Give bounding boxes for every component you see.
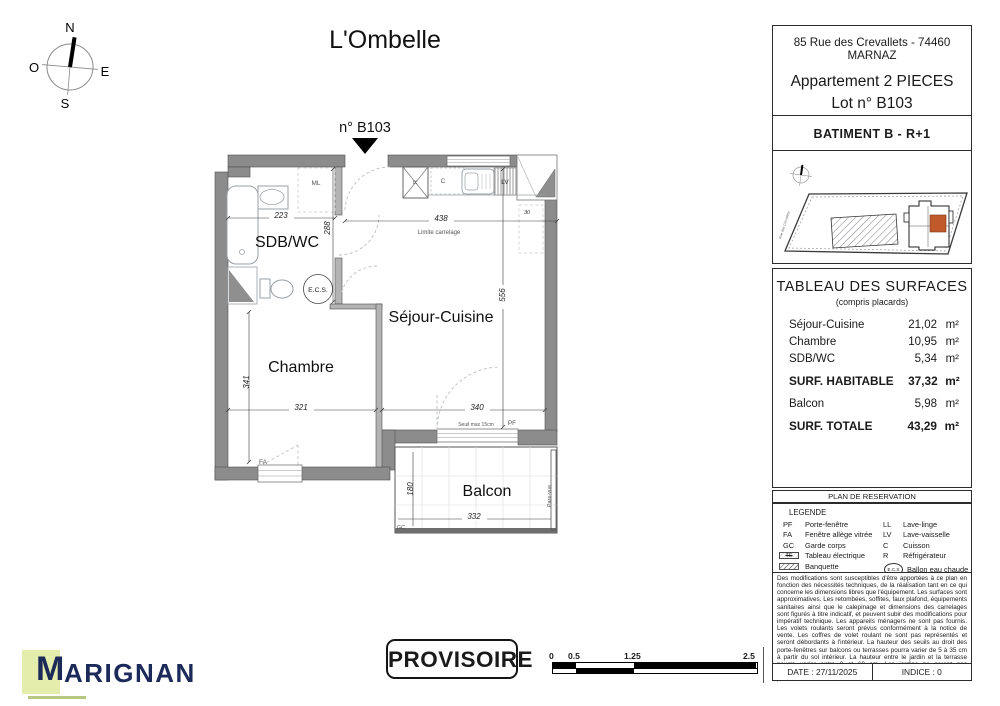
interior-partitions — [330, 167, 382, 467]
legend-label: Porte-fenêtre — [805, 520, 848, 529]
bedroom-door-swing — [340, 266, 377, 303]
surfaces-subtitle: (compris placards) — [773, 297, 971, 307]
surfaces-title: TABLEAU DES SURFACES — [773, 279, 971, 295]
logo-underline — [28, 696, 86, 699]
compass-e-label: E — [101, 64, 110, 79]
surface-unit: m² — [937, 353, 959, 365]
scale-tick-label: 1.25 — [624, 651, 641, 661]
logo-wordmark: ARIGNAN — [64, 658, 196, 689]
mini-compass-icon — [789, 163, 814, 188]
dim-sdb-width: 223 — [273, 211, 288, 220]
kitchen-window — [447, 156, 510, 166]
cooktop-label: C — [441, 178, 446, 185]
legend-title: LEGENDE — [789, 508, 971, 517]
door-swings — [339, 167, 500, 430]
surface-room: Chambre — [789, 336, 836, 348]
corner-window — [517, 155, 557, 200]
unit-location-highlight — [930, 215, 946, 232]
surface-room: Balcon — [789, 398, 824, 410]
reservation-title: PLAN DE RESERVATION — [828, 492, 916, 501]
refrigerator-icon: R — [403, 167, 428, 198]
legend-code: PF — [783, 520, 805, 529]
surface-unit: m² — [937, 419, 959, 433]
legend-item: LVLave-vaisselle — [881, 530, 971, 541]
apartment-type: Appartement 2 PIECES — [773, 73, 971, 91]
surface-unit: m² — [937, 336, 959, 348]
balcony-door-sill — [437, 429, 518, 442]
fa-label: FA — [259, 459, 268, 466]
legend-label: Réfrigérateur — [903, 551, 946, 560]
pf-label: PF — [508, 420, 516, 427]
dim-sejour-span: 340 — [470, 403, 484, 412]
surface-area: 43,29 — [893, 419, 937, 433]
compass-cross — [40, 35, 101, 98]
surface-row-habitable: SURF. HABITABLE 37,32m² — [773, 374, 971, 388]
scale-end-divider — [763, 647, 764, 683]
indice-value: INDICE : 0 — [873, 664, 972, 680]
scale-tick-label: 0.5 — [568, 651, 580, 661]
entry-arrow-icon — [352, 138, 378, 154]
room-label-sdb: SDB/WC — [255, 234, 319, 251]
surface-area: 21,02 — [893, 319, 937, 331]
sink-icon — [462, 169, 494, 194]
dim-balcon-height: 180 — [406, 482, 415, 496]
room-label-chambre: Chambre — [268, 359, 334, 376]
legend-label: Cuisson — [903, 541, 930, 550]
legend-label: Lave-vaisselle — [903, 530, 950, 539]
dim-sejour-width: 438 — [434, 214, 448, 223]
batiment-box: BATIMENT B - R+1 — [772, 115, 972, 151]
site-street-label: Rue des Crevallets — [778, 211, 791, 240]
disclaimer-box: Des modifications sont susceptibles d'êt… — [772, 572, 972, 664]
compass-o-label: O — [29, 60, 39, 75]
compass-rose-icon: N O E S — [20, 10, 130, 120]
surface-room: Séjour-Cuisine — [789, 319, 864, 331]
surface-row: SDB/WC 5,34m² — [773, 353, 971, 365]
refrigerator-label: R — [413, 180, 419, 184]
legend-label: Lave-linge — [903, 520, 937, 529]
legend-item: Banquette — [773, 561, 881, 572]
toilet-icon — [260, 279, 293, 298]
surface-row-totale: SURF. TOTALE 43,29m² — [773, 419, 971, 433]
lot-number: Lot n° B103 — [773, 95, 971, 113]
legend-code: LL — [883, 520, 903, 529]
surface-row: Chambre 10,95m² — [773, 336, 971, 348]
dim-chambre-width: 321 — [294, 403, 307, 412]
gc-label: GC — [397, 525, 405, 531]
floorplan-page: { "title": "L'Ombelle", "compass": {"n":… — [0, 0, 1000, 706]
dim-chambre-height: 341 — [242, 375, 251, 388]
surface-unit: m² — [937, 398, 959, 410]
scale-tick-label: 2.5 — [743, 651, 755, 661]
legend-code: FA — [783, 530, 805, 539]
electrical-panel-swatch: TE — [779, 552, 799, 559]
date-value: DATE : 27/11/2025 — [773, 664, 873, 680]
washbasin-icon — [258, 186, 288, 209]
balcony-door-swing — [437, 367, 500, 430]
balcony-guardrail — [395, 528, 557, 533]
legend-label: Fenêtre allège vitrée — [805, 530, 872, 539]
water-heater-label: E.C.S. — [308, 287, 328, 294]
washer-label: ML — [311, 180, 320, 187]
compass-s-label: S — [61, 96, 70, 111]
reservation-title-box: PLAN DE RESERVATION — [772, 490, 972, 503]
site-plan-box: Rue des Crevallets — [772, 150, 972, 264]
dishwasher-label: LV — [501, 179, 509, 186]
scale-tick-label: 0 — [549, 651, 554, 661]
surface-area: 10,95 — [893, 336, 937, 348]
surface-unit: m² — [938, 374, 960, 388]
compass-n-label: N — [65, 20, 74, 35]
room-label-sejour: Séjour-Cuisine — [389, 309, 494, 326]
surface-row: Séjour-Cuisine 21,02m² — [773, 319, 971, 331]
logo-m-letter: M — [36, 650, 64, 689]
surface-room: SDB/WC — [789, 353, 835, 365]
dim-right-sill: 30 — [524, 210, 531, 216]
limite-carrelage-label: Limite carrelage — [418, 230, 461, 236]
legend-item: PFPorte-fenêtre — [773, 519, 881, 530]
soffit-outline — [519, 205, 543, 253]
legend-code: LV — [883, 530, 903, 539]
site-plan: Rue des Crevallets — [773, 151, 971, 263]
dishwasher-icon: LV — [494, 168, 516, 195]
legend-item: CCuisson — [881, 540, 971, 551]
address-line: 85 Rue des Crevallets - 74460 MARNAZ — [773, 36, 971, 62]
surface-room: SURF. TOTALE — [789, 419, 872, 433]
building-b-footprint — [904, 201, 953, 250]
room-label-balcon: Balcon — [463, 483, 512, 500]
surface-area: 37,32 — [894, 374, 938, 388]
scale-bar: 0 0.5 1.25 2.5 — [552, 651, 758, 675]
legend-item: FAFenêtre allège vitrée — [773, 530, 881, 541]
batiment-label: BATIMENT B - R+1 — [773, 127, 971, 141]
surface-area: 5,98 — [893, 398, 937, 410]
water-heater-icon: E.C.S. — [304, 275, 333, 304]
surface-room: SURF. HABITABLE — [789, 374, 894, 388]
scale-bar-graphic — [552, 662, 758, 674]
unit-number-label: n° B103 — [339, 120, 391, 136]
legend-code: GC — [783, 541, 805, 550]
provisoire-stamp: PROVISOIRE — [386, 639, 518, 679]
legend-label: Garde corps — [805, 541, 846, 550]
floor-plan: n° B103 — [200, 95, 580, 565]
building-a-footprint — [831, 214, 898, 248]
legend-box: LEGENDE PFPorte-fenêtre FAFenêtre allège… — [772, 503, 972, 573]
washer-slot: ML — [298, 168, 335, 212]
surfaces-table-box: TABLEAU DES SURFACES (compris placards) … — [772, 268, 972, 488]
legend-item: RRéfrigérateur — [881, 551, 971, 562]
legend-label: Tableau électrique — [805, 551, 865, 560]
legend-code: R — [883, 551, 903, 560]
compass-needle — [70, 37, 75, 67]
pare-vue-label: Pare-vue — [547, 485, 553, 507]
page-title: L'Ombelle — [250, 26, 520, 55]
legend-item: TETableau électrique — [773, 551, 881, 562]
seuil-label: Seuil max 15cm — [458, 422, 494, 428]
dim-sejour-height: 556 — [498, 288, 507, 302]
banquette-swatch — [779, 563, 799, 570]
dim-sdb-height: 288 — [323, 221, 332, 236]
legend-item: LLLave-linge — [881, 519, 971, 530]
legend-code: C — [883, 541, 903, 550]
surface-unit: m² — [937, 319, 959, 331]
legend-label: Banquette — [805, 562, 839, 571]
date-box: DATE : 27/11/2025 INDICE : 0 — [772, 663, 972, 681]
cooktop-icon: C — [431, 168, 464, 194]
dim-balcon-width: 332 — [467, 512, 481, 521]
marignan-logo: M ARIGNAN — [22, 648, 202, 700]
entry-door-swing — [345, 167, 390, 210]
bathtub-icon — [227, 186, 258, 264]
window-seat — [228, 267, 257, 304]
legend-item: GCGarde corps — [773, 540, 881, 551]
surface-area: 5,34 — [893, 353, 937, 365]
address-box: 85 Rue des Crevallets - 74460 MARNAZ App… — [772, 25, 972, 116]
surface-row: Balcon 5,98m² — [773, 398, 971, 410]
